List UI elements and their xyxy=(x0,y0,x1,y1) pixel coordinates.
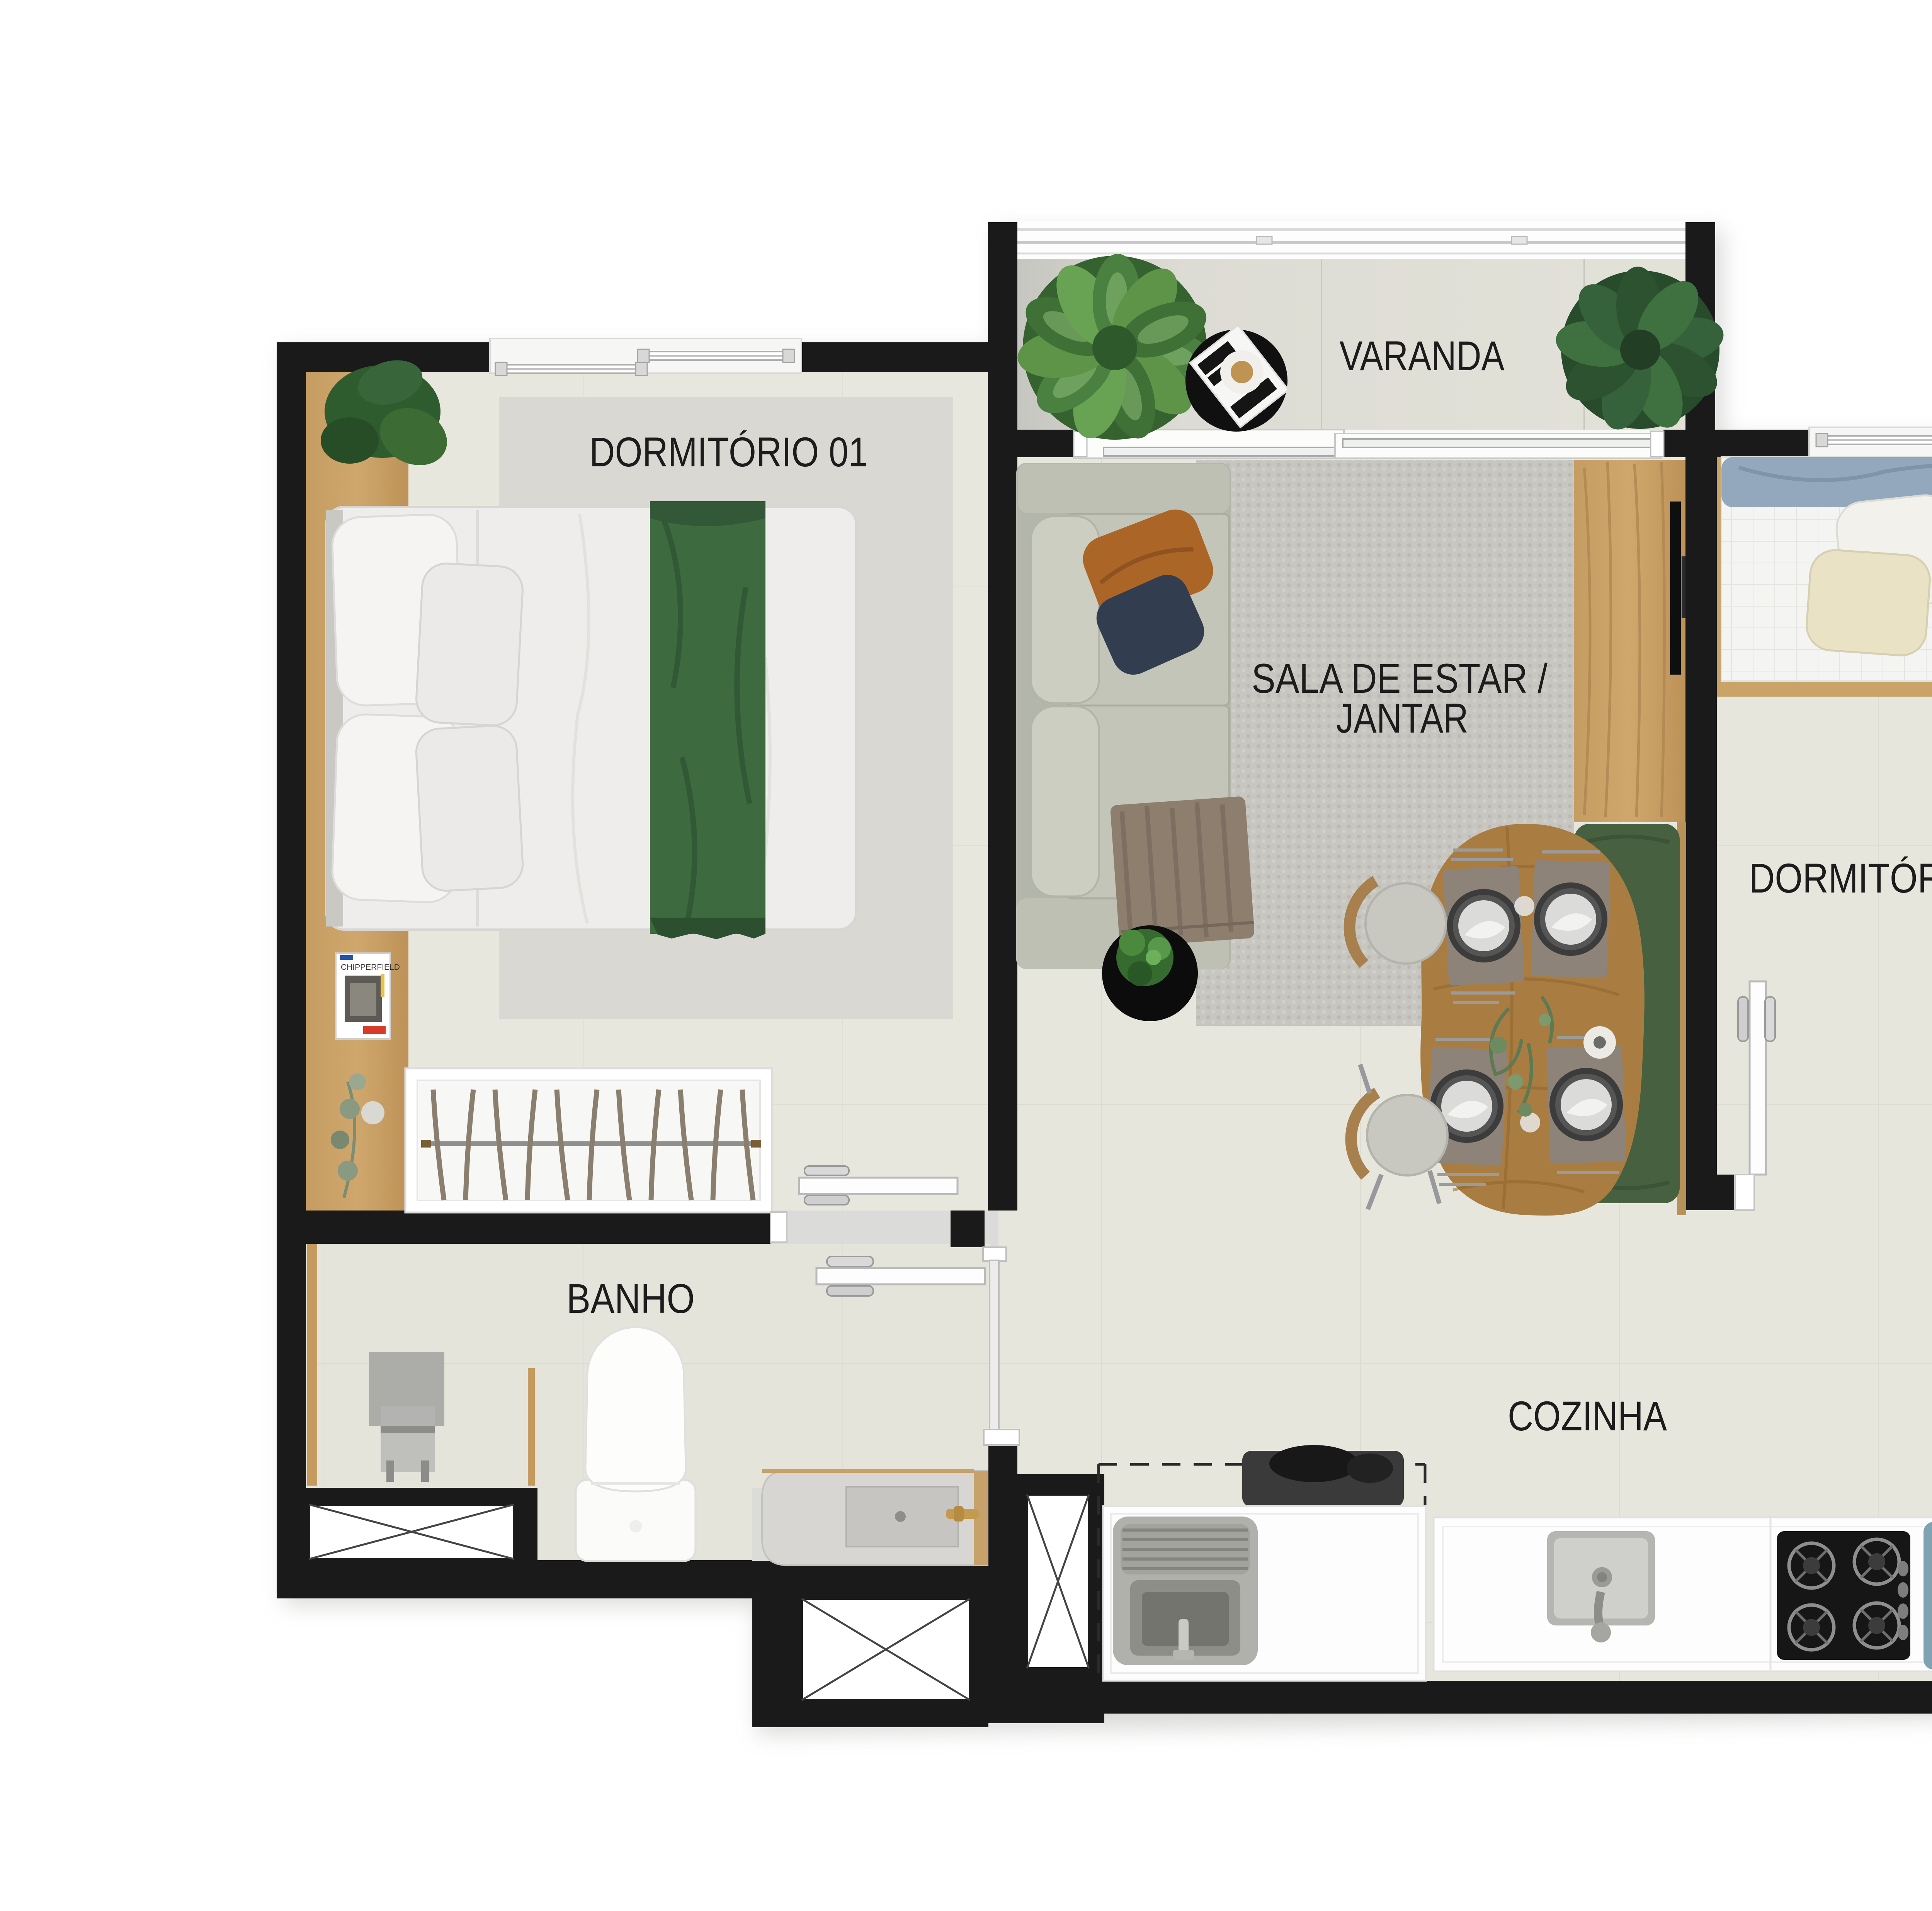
svg-text:COZINHA: COZINHA xyxy=(1508,1392,1667,1439)
svg-text:JANTAR: JANTAR xyxy=(1336,695,1468,741)
svg-text:BANHO: BANHO xyxy=(566,1275,695,1322)
svg-text:DORMITÓRIO 01: DORMITÓRIO 01 xyxy=(590,428,868,475)
svg-text:DORMITÓRIO 02: DORMITÓRIO 02 xyxy=(1749,855,1932,901)
svg-text:CHIPPERFIELD: CHIPPERFIELD xyxy=(341,963,400,972)
svg-text:VARANDA: VARANDA xyxy=(1340,332,1505,379)
